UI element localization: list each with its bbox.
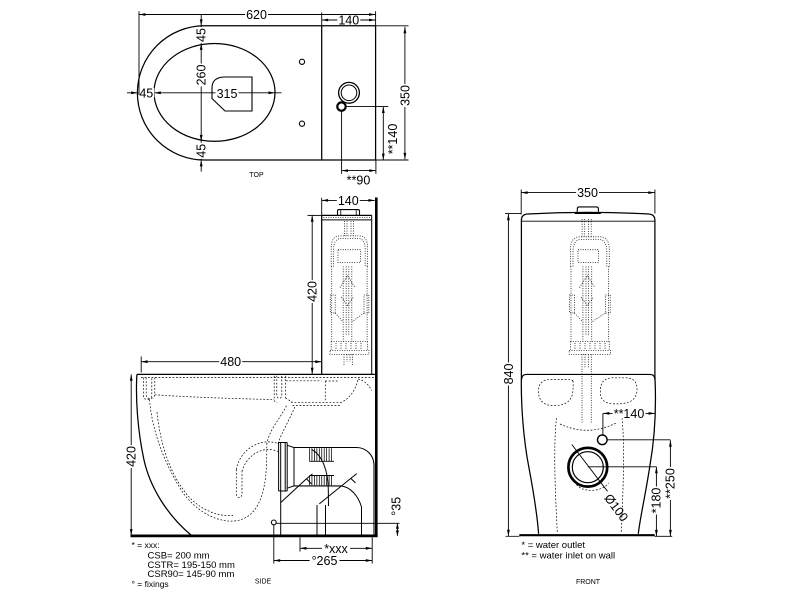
svg-text:*180: *180 <box>649 488 663 514</box>
svg-text:420: 420 <box>306 281 320 302</box>
svg-text:45: 45 <box>194 28 208 42</box>
svg-text:°265: °265 <box>312 554 338 568</box>
svg-text:**250: **250 <box>664 468 678 499</box>
svg-text:45: 45 <box>194 144 208 158</box>
svg-text:620: 620 <box>246 8 267 22</box>
svg-text:** = water inlet on wall: ** = water inlet on wall <box>521 550 615 561</box>
svg-text:260: 260 <box>194 65 208 86</box>
svg-text:45: 45 <box>139 86 153 100</box>
svg-text:SIDE: SIDE <box>255 579 272 586</box>
svg-text:**90: **90 <box>347 174 371 188</box>
svg-text:350: 350 <box>398 85 412 106</box>
svg-text:840: 840 <box>502 364 516 385</box>
svg-text:140: 140 <box>338 194 359 208</box>
svg-text:420: 420 <box>125 446 139 467</box>
svg-text:140: 140 <box>338 14 359 28</box>
svg-text:°35: °35 <box>390 497 404 516</box>
svg-text:315: 315 <box>217 87 238 101</box>
svg-text:FRONT: FRONT <box>576 579 601 586</box>
svg-text:480: 480 <box>220 355 241 369</box>
svg-text:**140: **140 <box>614 407 645 421</box>
svg-text:° = fixings: ° = fixings <box>132 579 169 589</box>
svg-text:TOP: TOP <box>249 172 264 179</box>
svg-text:**140: **140 <box>386 124 400 155</box>
svg-text:350: 350 <box>577 186 598 200</box>
svg-text:* = xxx:: * = xxx: <box>132 540 160 550</box>
